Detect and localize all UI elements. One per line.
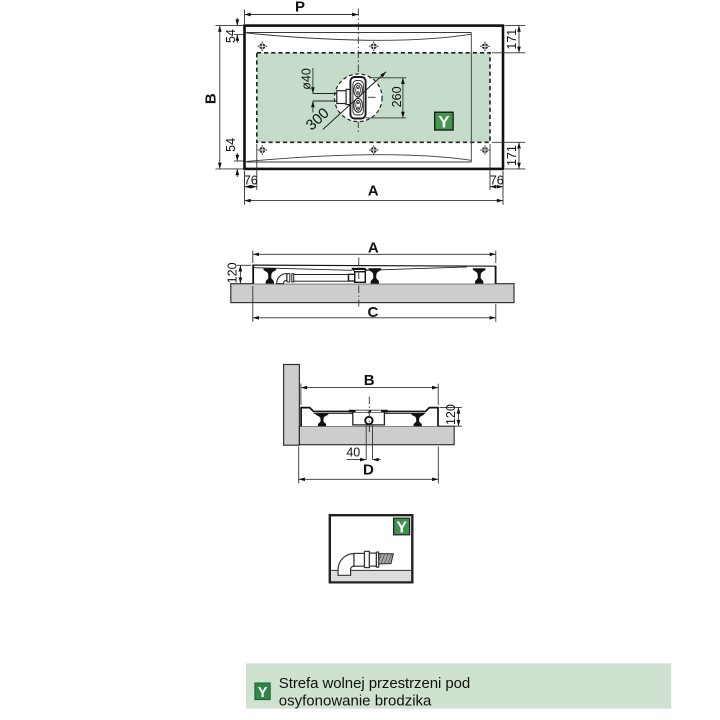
- svg-text:171: 171: [505, 145, 519, 166]
- svg-text:osyfonowanie brodzika: osyfonowanie brodzika: [279, 693, 432, 710]
- svg-text:D: D: [363, 461, 374, 478]
- svg-text:76: 76: [244, 173, 258, 187]
- svg-text:Strefa wolnej przestrzeni pod: Strefa wolnej przestrzeni pod: [279, 675, 470, 692]
- svg-text:A: A: [368, 240, 379, 257]
- svg-text:Y: Y: [438, 112, 450, 131]
- svg-text:A: A: [368, 183, 379, 200]
- svg-text:40: 40: [346, 446, 360, 460]
- svg-text:C: C: [367, 304, 378, 321]
- svg-text:B: B: [203, 93, 220, 104]
- svg-text:171: 171: [505, 29, 519, 50]
- svg-text:120: 120: [444, 404, 458, 425]
- svg-text:54: 54: [224, 29, 238, 43]
- svg-text:Y: Y: [258, 685, 268, 701]
- svg-text:ø40: ø40: [300, 68, 314, 90]
- svg-text:76: 76: [490, 173, 504, 187]
- svg-text:260: 260: [390, 86, 404, 107]
- svg-text:120: 120: [226, 262, 240, 283]
- svg-text:Y: Y: [396, 519, 407, 536]
- svg-text:P: P: [295, 0, 305, 16]
- svg-text:54: 54: [224, 138, 238, 152]
- svg-text:B: B: [364, 372, 375, 389]
